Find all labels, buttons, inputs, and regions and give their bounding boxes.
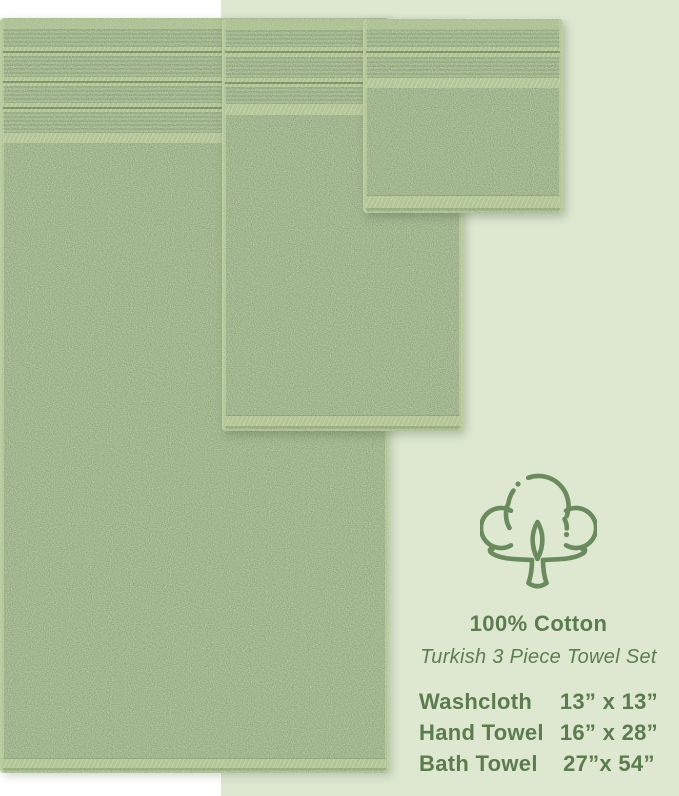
size-dimensions-washcloth: 13” x 13” (560, 686, 658, 717)
size-item-washcloth: Washcloth (419, 686, 544, 717)
cotton-flower-icon (480, 470, 597, 593)
washcloth-dobby-border (363, 19, 563, 213)
subheading-towel-set: Turkish 3 Piece Towel Set (420, 646, 657, 668)
heading-100-percent-cotton: 100% Cotton (470, 612, 608, 636)
towel-flat-band (366, 78, 560, 88)
product-info-block: 100% Cotton Turkish 3 Piece Towel Set Wa… (398, 440, 679, 779)
towel-bottom-hem (3, 759, 386, 770)
towel-product-photo: { "product_image": { "background_color":… (0, 0, 679, 796)
towel-stripe-band (366, 29, 560, 47)
size-item-bath-towel: Bath Towel (419, 748, 544, 779)
towel-stripe-gap (366, 47, 560, 57)
size-dimensions-bath-towel: 27”x 54” (560, 748, 658, 779)
towel-bottom-hem (225, 416, 460, 428)
towel-bottom-hem (366, 196, 560, 210)
towel-stripe-band (366, 57, 560, 78)
washcloth-image (363, 19, 563, 213)
size-item-hand-towel: Hand Towel (419, 717, 544, 748)
size-dimensions-hand-towel: 16” x 28” (560, 717, 658, 748)
size-list: Washcloth 13” x 13” Hand Towel 16” x 28”… (419, 686, 658, 779)
